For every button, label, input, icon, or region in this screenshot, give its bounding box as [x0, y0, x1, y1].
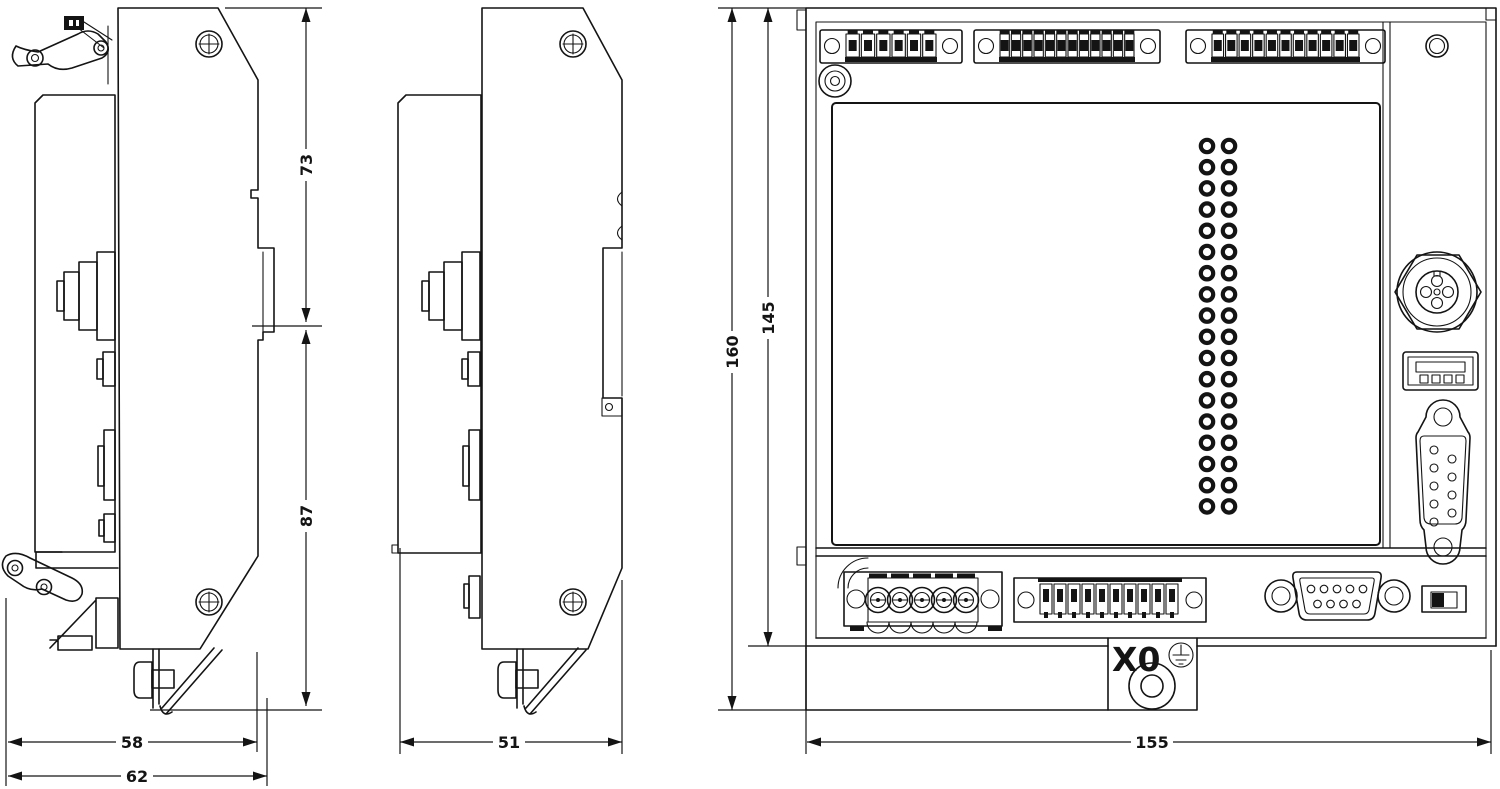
body-outline — [118, 8, 274, 649]
mount-tab — [797, 10, 806, 30]
svg-text:145: 145 — [759, 301, 778, 334]
dim-145: 145 — [758, 297, 778, 339]
screw-icon — [819, 65, 851, 97]
screw-icon — [560, 589, 586, 615]
screw-icon — [196, 31, 222, 57]
svg-text:58: 58 — [121, 733, 143, 752]
usb-port-icon — [1403, 352, 1478, 390]
svg-text:62: 62 — [126, 767, 148, 786]
device-dimensional-drawing: X0 73 — [0, 0, 1500, 789]
screw-icon — [196, 589, 222, 615]
mount-hole — [1426, 35, 1448, 57]
side-view-plain — [392, 8, 622, 714]
earth-ground-icon — [1169, 643, 1193, 667]
db9-connector-horizontal-icon — [1265, 572, 1410, 620]
dim-155: 155 — [1131, 732, 1173, 752]
usb-port-side-icon — [462, 352, 480, 386]
db9-connector-side-icon — [463, 430, 480, 500]
dimension-lines: 73 87 58 62 51 160 145 155 — [6, 8, 1491, 786]
svg-text:87: 87 — [297, 505, 316, 527]
top-terminal-blocks — [820, 30, 1385, 63]
dim-62: 62 — [121, 766, 153, 786]
db9-connector-vertical-icon — [1416, 400, 1470, 564]
screw-icon — [560, 31, 586, 57]
dim-87: 87 — [296, 500, 316, 532]
mount-tab — [797, 547, 806, 565]
front-panel — [832, 103, 1380, 545]
io-terminal-block — [1014, 578, 1206, 622]
mounting-foot — [498, 648, 586, 714]
usb-port-side-icon — [97, 352, 115, 386]
front-view: X0 — [797, 8, 1496, 710]
body-outline — [482, 8, 622, 649]
connector-side-icon — [99, 514, 115, 542]
svg-text:160: 160 — [723, 335, 742, 368]
db9-connector-side-icon — [98, 430, 115, 500]
dip-switch[interactable] — [1422, 586, 1466, 612]
svg-text:51: 51 — [498, 733, 520, 752]
connector-side-icon — [464, 576, 480, 618]
m12-connector-icon — [1395, 252, 1481, 332]
rear-panel — [35, 95, 115, 552]
dim-51: 51 — [493, 732, 525, 752]
x0-ground-tab: X0 — [1108, 638, 1197, 710]
corner-arcs — [838, 558, 868, 588]
din-clip-bottom-icon — [2, 552, 118, 650]
x0-label: X0 — [1112, 640, 1160, 679]
power-terminal-block — [844, 572, 1002, 633]
dimensional-drawing-page: X0 73 — [0, 0, 1500, 789]
svg-text:155: 155 — [1135, 733, 1168, 752]
mounting-foot — [134, 648, 222, 714]
ventilation-holes — [1201, 140, 1235, 513]
m12-connector-side-icon — [422, 252, 480, 340]
bottom-tray — [806, 648, 1108, 710]
dim-58: 58 — [116, 732, 148, 752]
m12-connector-side-icon — [57, 252, 115, 340]
dim-73: 73 — [296, 149, 316, 181]
dim-160: 160 — [722, 331, 742, 373]
din-clip-top-icon — [12, 16, 112, 84]
side-view-with-clips — [2, 8, 274, 714]
svg-text:73: 73 — [297, 154, 316, 176]
